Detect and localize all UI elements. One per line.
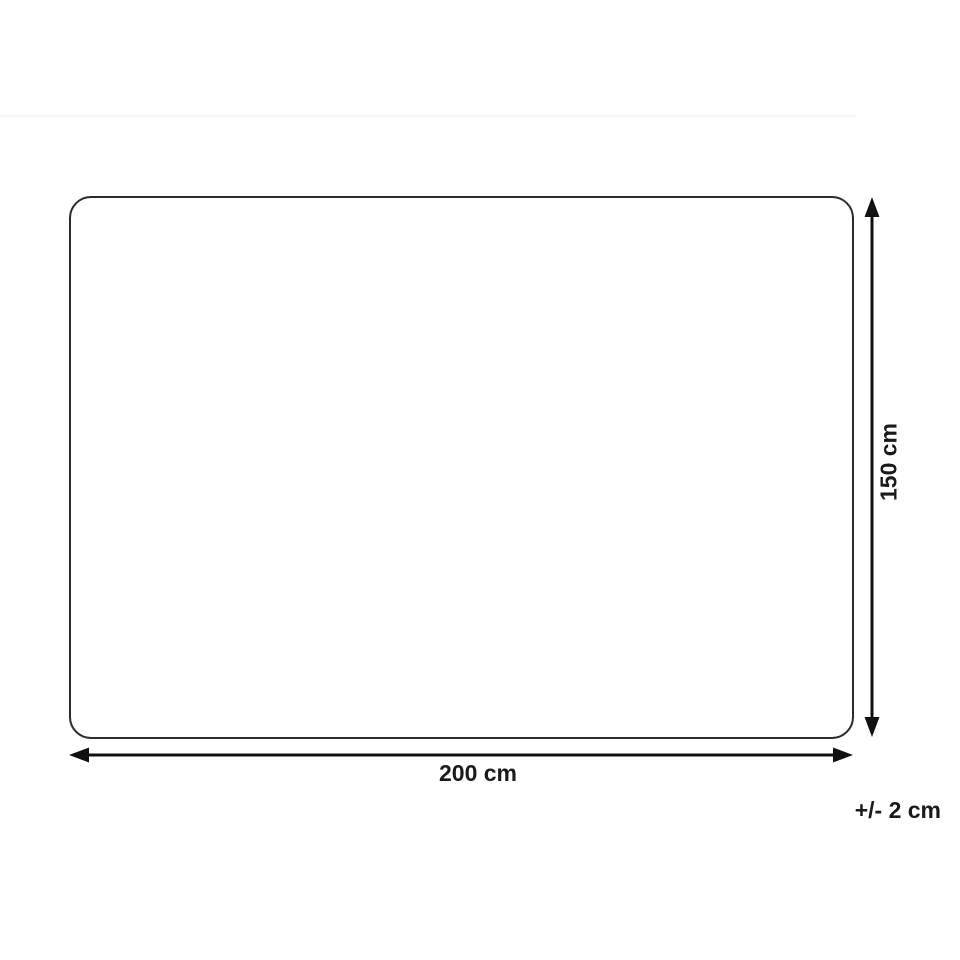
width-dimension-label: 200 cm [439, 762, 517, 785]
arrowhead-down-icon [865, 717, 880, 737]
tolerance-label: +/- 2 cm [855, 799, 941, 822]
dimension-diagram: 200 cm 150 cm +/- 2 cm [0, 0, 960, 960]
dimension-arrows [0, 0, 960, 960]
height-dimension-label: 150 cm [878, 423, 901, 501]
arrowhead-right-icon [833, 748, 853, 763]
arrowhead-up-icon [865, 197, 880, 217]
arrowhead-left-icon [69, 748, 89, 763]
